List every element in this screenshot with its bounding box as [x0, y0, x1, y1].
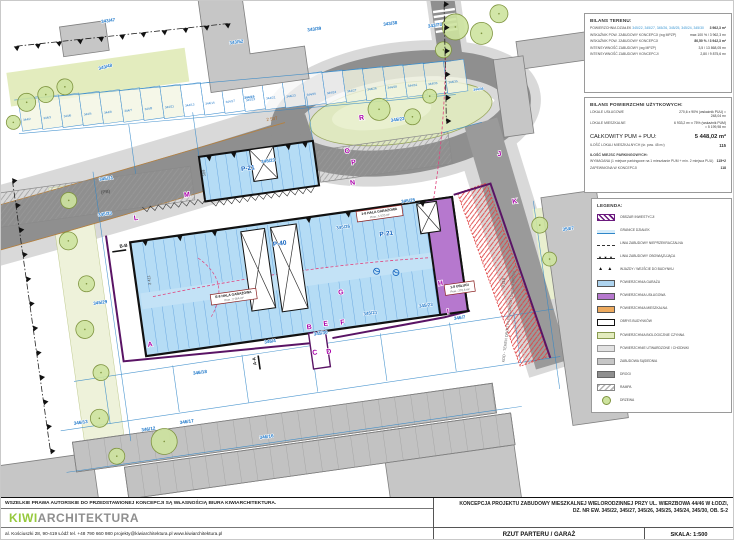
street-parcel: [443, 59, 468, 94]
bilans-terenu-row-value: 3 962,3 m²: [710, 26, 726, 30]
flats-label: ILOŚĆ LOKALI MIESZKALNYCH (śr. pow. 45 m…: [590, 143, 716, 148]
company-logo-band: KIWIARCHITEKTURA: [1, 508, 433, 528]
parcel-number-label: 343/39: [307, 26, 322, 33]
legend-item: POWIERZCHNIA BIOLOGICZNIE CZYNNA: [597, 329, 726, 342]
legend-item-label: LINIA ZABUDOWY OBOWIĄZUJĄCA: [620, 255, 675, 259]
legend-item-label: GRANICE DZIAŁEK: [620, 229, 650, 233]
parking-row: ZAPEWNIONA W KONCEPCJI118: [590, 166, 726, 170]
bilans-powierzchni-row-value: 6 933,2 m² x 75% (wskaźnik PUM) = 5 199,…: [674, 121, 726, 130]
legend-item-label: WJAZDY / WEJŚCIE DO BUDYNKU: [620, 268, 674, 272]
parcel-number-label: 343/38: [383, 20, 398, 27]
total-pum-puu-row: CAŁKOWITY PUM + PUU: 5 448,02 m²: [590, 134, 726, 140]
legend-item-label: ZABUDOWA SĄSIEDNIA: [620, 360, 657, 364]
parcel-number-label: 346/18: [193, 369, 208, 376]
swatch-road-icon: [597, 371, 615, 378]
line-dashdot-icon: [597, 245, 615, 246]
bilans-terenu-row: WSKAŹNIK POW. ZABUDOWY KONCEPCJI80,50 % …: [590, 39, 726, 43]
parking-row-value: 115+2: [717, 159, 726, 163]
corner-letter-marker: B: [306, 324, 312, 332]
legend-item-label: POWIERZCHNIA BIOLOGICZNIE CZYNNA: [620, 334, 684, 338]
bilans-terenu-row: WSKAŹNIK POW. ZABUDOWY KONCEPCJI (wg MPZ…: [590, 33, 726, 37]
building-line-triangle: [140, 32, 147, 38]
bilans-powierzchni-row-value: 270,6 x 90% (wskaźnik PUU) = 248,04 m²: [674, 110, 726, 119]
swatch-ramp-icon: [597, 384, 615, 391]
logo-architektura: ARCHITEKTURA: [38, 511, 139, 525]
swatch-outline-icon: [597, 319, 615, 326]
project-title: KONCEPCJA PROJEKTU ZABUDOWY MIESZKALNEJ …: [434, 498, 733, 527]
parcel-line: [380, 333, 387, 381]
building-line-triangle: [35, 43, 42, 49]
parcel-line: [449, 323, 456, 372]
legend-item: RAMPA: [597, 381, 726, 394]
legend-item-label: DRZEWA: [620, 399, 634, 403]
legend-item: OBSZAR INWESTYCJI: [597, 211, 726, 224]
bilans-powierzchni-row: LOKALE USŁUGOWE270,6 x 90% (wskaźnik PUU…: [590, 110, 726, 119]
bilans-terenu-row-label: WSKAŹNIK POW. ZABUDOWY KONCEPCJI (wg MPZ…: [590, 33, 687, 37]
swatch-paved-icon: [597, 345, 615, 352]
legend-item-label: OBSZAR INWESTYCJI: [620, 216, 654, 220]
legend-item: DRZEWA: [597, 394, 726, 407]
logo-kiwi: KIWI: [9, 511, 38, 525]
drawing-name: RZUT PARTERU / GARAŻ: [434, 528, 644, 540]
parcel-numbers-accent: 345/22, 345/27, 345/26, 345/25, 345/24, …: [631, 26, 704, 30]
corner-letter-marker: N: [350, 179, 356, 187]
parking-row-value: 118: [721, 166, 726, 170]
legend-item: ZABUDOWA SĄSIEDNIA: [597, 355, 726, 368]
legend-title: LEGENDA:: [597, 203, 726, 208]
legend-item-label: DROGI: [620, 373, 631, 377]
building-line-triangle: [182, 28, 189, 34]
bilans-powierzchni-title: BILANS POWIERZCHNI UŻYTKOWYCH:: [590, 102, 726, 107]
swatch-bio-icon: [597, 332, 615, 339]
legend-item: OBRYS BUDYNKÓW: [597, 316, 726, 329]
legend-item-label: RAMPA: [620, 386, 631, 390]
line-triangles-icon: [597, 258, 615, 259]
bilans-terenu-row: POWIERZCHNIA DZIAŁEK 345/22, 345/27, 345…: [590, 26, 726, 30]
bilans-terenu-row-value: max 100 % / 3 962,3 m²: [690, 33, 726, 37]
legend-item: POWIERZCHNIA MIESZKALNA: [597, 303, 726, 316]
building-line-triangle: [26, 276, 32, 283]
parking-row-label: WYMAGANA (1 miejsce parkingowe na 1 mies…: [590, 159, 714, 163]
bilans-terenu-row-value: 2,80 / 9 875,6 m²: [700, 52, 726, 56]
copyright-note: WSZELKIE PRAWA AUTORSKIE DO PRZEDSTAWION…: [1, 498, 433, 508]
title-block: WSZELKIE PRAWA AUTORSKIE DO PRZEDSTAWION…: [1, 497, 733, 540]
corner-letter-marker: A: [147, 341, 153, 349]
flats-value: 115: [719, 143, 726, 148]
building-line-triangle: [36, 349, 42, 356]
legend-item: POWIERZCHNIA USŁUGOWA: [597, 290, 726, 303]
building-line-triangle: [29, 300, 35, 307]
company-address: al. Kościuszki 28, 90-419 Łódź tel. +48 …: [1, 528, 433, 539]
corner-letter-marker: K: [512, 198, 518, 206]
parcel-number-label: 343/47: [101, 17, 116, 24]
bilans-powierzchni-row: LOKALE MIESZKALNE6 933,2 m² x 75% (wskaź…: [590, 121, 726, 130]
drawing-scale: SKALA: 1:500: [644, 528, 733, 540]
total-label: CAŁKOWITY PUM + PUU:: [590, 134, 657, 140]
legend-item: LINIA ZABUDOWY OBOWIĄZUJĄCA: [597, 250, 726, 263]
parcel-line-icon: [597, 230, 615, 234]
legend-item: DROGI: [597, 368, 726, 381]
corner-letter-marker: M: [184, 192, 191, 200]
flats-count-row: ILOŚĆ LOKALI MIESZKALNYCH (śr. pow. 45 m…: [590, 143, 726, 148]
project-line1: KONCEPCJA PROJEKTU ZABUDOWY MIESZKALNEJ …: [439, 501, 728, 508]
swatch-services-icon: [597, 293, 615, 300]
building-line-triangle: [43, 399, 49, 406]
parcel-number-label: 346/17: [179, 418, 194, 425]
building-line-triangle: [47, 423, 53, 430]
bilans-terenu-row-value: 80,50 % / 3 942,3 m²: [694, 39, 726, 43]
bilans-terenu-row: INTENSYWNOŚĆ ZABUDOWY (wg MPZP)3,5 / 13 …: [590, 46, 726, 50]
drawing-info-row: RZUT PARTERU / GARAŻ SKALA: 1:500: [434, 527, 733, 540]
swatch-residential-icon: [597, 306, 615, 313]
swatch-neighbor-icon: [597, 358, 615, 365]
legend-item: POWIERZCHNIA GARAŻU: [597, 276, 726, 289]
building-line-triangle: [119, 34, 126, 40]
parking-row: WYMAGANA (1 miejsce parkingowe na 1 mies…: [590, 159, 726, 163]
title-block-left: WSZELKIE PRAWA AUTORSKIE DO PRZEDSTAWION…: [1, 498, 434, 540]
bilans-terenu-title: BILANS TERENU:: [590, 18, 726, 23]
parcel-line: [242, 355, 249, 403]
legend-item-label: OBRYS BUDYNKÓW: [620, 320, 652, 324]
legend-item: POWIERZCHNIE UTWARDZONE / CHODNIKI: [597, 342, 726, 355]
swatch-garage-icon: [597, 280, 615, 287]
bilans-powierzchni-row-label: LOKALE USŁUGOWE: [590, 110, 671, 119]
boundary-icon: [597, 214, 615, 221]
parcel-number-label: 346/7: [454, 314, 467, 321]
bilans-powierzchni-row-label: LOKALE MIESZKALNE: [590, 121, 671, 130]
section-mark-label: B-B: [119, 243, 128, 249]
bilans-terenu-row-label: INTENSYWNOŚĆ ZABUDOWY (wg MPZP): [590, 46, 695, 50]
bilans-terenu-row-label: WSKAŹNIK POW. ZABUDOWY KONCEPCJI: [590, 39, 691, 43]
building-line-triangle: [33, 325, 39, 332]
bilans-terenu-row: INTENSYWNOŚĆ ZABUDOWY KONCEPCJI2,80 / 9 …: [590, 52, 726, 56]
building-line-triangle: [14, 46, 21, 52]
drawing-sheet: 343/47343/48343/52343/39343/38343/73344/…: [0, 0, 734, 540]
legend-item: LINIA ZABUDOWY NIEPRZEKRACZALNA: [597, 237, 726, 250]
bilans-powierzchni-panel: BILANS POWIERZCHNI UŻYTKOWYCH: LOKALE US…: [584, 97, 732, 193]
legend-item: WJAZDY / WEJŚCIE DO BUDYNKU: [597, 263, 726, 276]
tree-icon: [602, 396, 611, 405]
bilans-terenu-row-value: 3,5 / 13 868,05 m²: [698, 46, 726, 50]
parking-row-label: ZAPEWNIONA W KONCEPCJI: [590, 166, 718, 170]
parcel-line: [173, 366, 180, 413]
legend-item-label: POWIERZCHNIE UTWARDZONE / CHODNIKI: [620, 347, 689, 351]
legend-item-label: POWIERZCHNIA MIESZKALNA: [620, 307, 667, 311]
legend-item-label: POWIERZCHNIA USŁUGOWA: [620, 294, 666, 298]
total-value: 5 448,02 m²: [695, 134, 726, 140]
legend-item-label: POWIERZCHNIA GARAŻU: [620, 281, 660, 285]
corner-letter-marker: C: [312, 349, 318, 357]
bilans-terenu-row-label: POWIERZCHNIA DZIAŁEK 345/22, 345/27, 345…: [590, 26, 707, 30]
title-block-right: KONCEPCJA PROJEKTU ZABUDOWY MIESZKALNEJ …: [434, 498, 733, 540]
corner-letter-marker: D: [326, 348, 332, 356]
bilans-terenu-row-label: INTENSYWNOŚĆ ZABUDOWY KONCEPCJI: [590, 52, 697, 56]
section-mark-label: A-A: [251, 356, 257, 365]
company-logo: KIWIARCHITEKTURA: [9, 511, 139, 525]
legend-item: GRANICE DZIAŁEK: [597, 224, 726, 237]
entrance-icon: [597, 266, 615, 273]
corner-letter-marker: H: [438, 280, 444, 288]
project-line2: DZ. NR EW. 345/22, 345/27, 345/26, 345/2…: [439, 508, 728, 515]
legend-panel: LEGENDA: OBSZAR INWESTYCJIGRANICE DZIAŁE…: [591, 198, 732, 413]
bilans-terenu-panel: BILANS TERENU: POWIERZCHNIA DZIAŁEK 345/…: [584, 13, 732, 93]
legend-item-label: LINIA ZABUDOWY NIEPRZEKRACZALNA: [620, 242, 683, 246]
parcel-number-label: 346/4: [264, 338, 277, 345]
corner-letter-marker: R: [359, 115, 365, 123]
building-line-triangle: [40, 374, 46, 381]
parking-title: ILOŚĆ MIEJSC PARKINGOWYCH:: [590, 153, 726, 157]
building-line-triangle: [50, 448, 56, 455]
building-line-triangle: [161, 30, 168, 36]
